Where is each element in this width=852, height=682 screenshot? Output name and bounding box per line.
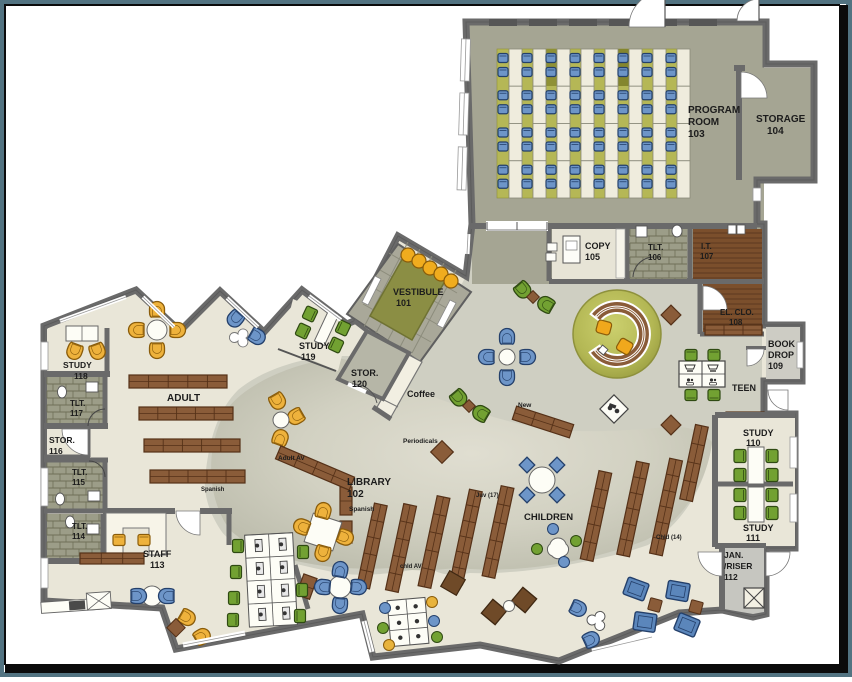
svg-text:Spanish: Spanish: [201, 487, 225, 493]
svg-text:106: 106: [648, 253, 662, 262]
svg-text:102: 102: [347, 489, 364, 500]
svg-text:107: 107: [700, 252, 714, 261]
svg-text:Adult AV: Adult AV: [278, 455, 305, 462]
svg-text:Spanish: Spanish: [349, 506, 374, 513]
svg-text:COPY: COPY: [585, 241, 611, 251]
svg-text:Coffee: Coffee: [407, 389, 435, 399]
svg-text:TLT.: TLT.: [72, 468, 87, 477]
svg-text:TLT.: TLT.: [648, 243, 663, 252]
svg-text:chld AV: chld AV: [400, 564, 422, 570]
svg-text:Juv (17): Juv (17): [476, 493, 499, 499]
svg-text:114: 114: [72, 532, 85, 541]
svg-text:105: 105: [585, 252, 600, 262]
svg-text:JAN.: JAN.: [724, 550, 743, 560]
svg-text:120: 120: [352, 379, 367, 389]
svg-text:/RISER: /RISER: [724, 561, 752, 571]
svg-text:STOR.: STOR.: [351, 368, 378, 378]
svg-text:CHILDREN: CHILDREN: [524, 512, 573, 523]
svg-text:Chld (14): Chld (14): [656, 535, 682, 541]
svg-text:TLT.: TLT.: [72, 522, 87, 531]
svg-text:EL. CLO.: EL. CLO.: [720, 308, 754, 317]
svg-text:New: New: [518, 402, 532, 409]
svg-text:DROP: DROP: [768, 350, 794, 360]
svg-text:119: 119: [301, 352, 316, 362]
svg-text:111: 111: [746, 533, 760, 543]
svg-text:PROGRAM: PROGRAM: [688, 105, 740, 116]
svg-text:118: 118: [74, 371, 88, 381]
svg-text:STUDY: STUDY: [63, 360, 92, 370]
svg-text:VESTIBULE: VESTIBULE: [393, 287, 444, 297]
svg-text:STOR.: STOR.: [49, 435, 75, 445]
svg-text:STUDY: STUDY: [743, 523, 774, 533]
svg-text:TLT.: TLT.: [70, 399, 85, 408]
svg-text:101: 101: [396, 298, 411, 308]
svg-text:BOOK: BOOK: [768, 339, 796, 349]
svg-text:109: 109: [768, 361, 783, 371]
svg-text:LIBRARY: LIBRARY: [347, 477, 391, 488]
svg-text:113: 113: [150, 560, 165, 570]
svg-text:108: 108: [729, 318, 743, 327]
svg-text:ROOM: ROOM: [688, 117, 719, 128]
svg-text:115: 115: [72, 478, 85, 487]
svg-text:STUDY: STUDY: [743, 428, 774, 438]
svg-text:TEEN: TEEN: [732, 383, 756, 393]
svg-text:Periodicals: Periodicals: [403, 438, 438, 445]
svg-text:104: 104: [767, 126, 784, 137]
svg-text:STUDY: STUDY: [299, 341, 330, 351]
svg-text:112: 112: [724, 572, 738, 582]
svg-text:103: 103: [688, 129, 705, 140]
svg-text:110: 110: [746, 438, 761, 448]
svg-text:I.T.: I.T.: [701, 242, 712, 251]
svg-text:STAFF: STAFF: [143, 549, 172, 559]
svg-text:116: 116: [49, 446, 63, 456]
svg-text:117: 117: [70, 409, 83, 418]
svg-text:ADULT: ADULT: [167, 393, 200, 404]
svg-text:STORAGE: STORAGE: [756, 114, 806, 125]
